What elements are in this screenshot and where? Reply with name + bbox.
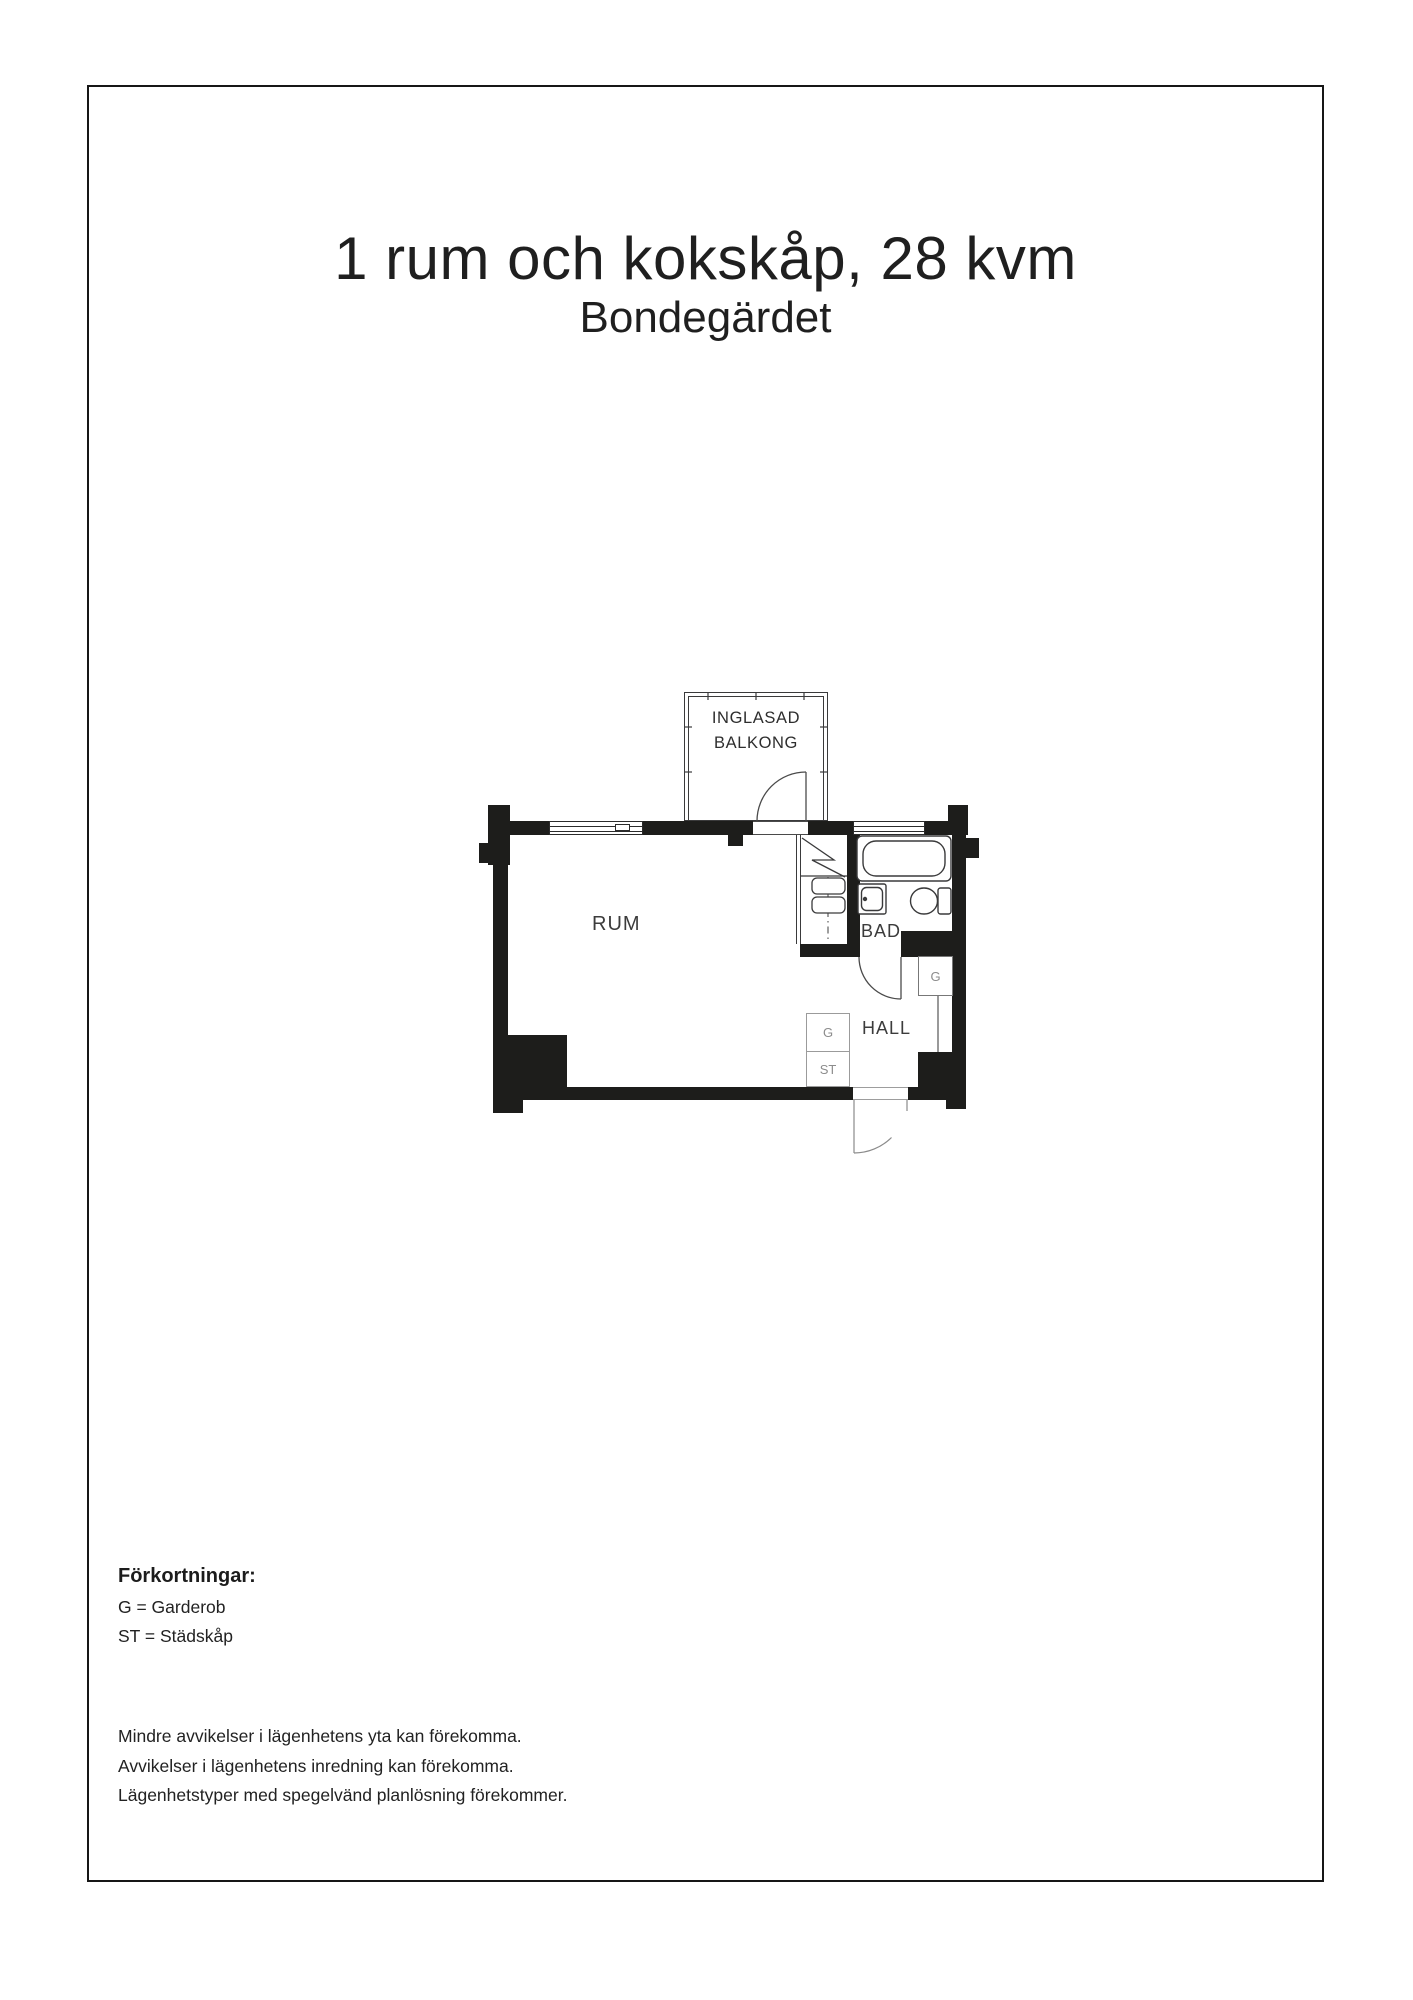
kokskap-partition <box>796 835 801 944</box>
wall-right-pilaster <box>966 838 979 858</box>
balcony-label: INGLASAD BALKONG <box>684 706 828 756</box>
wall-top-b <box>643 821 753 835</box>
closet-stadskap-label: ST <box>807 1052 849 1086</box>
window-glass-lines <box>854 826 924 832</box>
closet-garderob-stadskap-unit: G ST <box>806 1013 850 1087</box>
window-bathroom <box>853 821 925 835</box>
abbreviations-section: Förkortningar: G = Garderob ST = Städskå… <box>118 1563 256 1651</box>
wall-left <box>493 821 508 1100</box>
closet-garderob-label: G <box>807 1014 849 1052</box>
wall-kokskap-bad <box>847 835 860 957</box>
wall-bottom-right-step <box>918 1052 966 1100</box>
page-title: 1 rum och kokskåp, 28 kvm <box>87 228 1324 290</box>
page-border <box>87 85 1324 1882</box>
window-living-room <box>549 821 643 835</box>
wall-top-b-protrusion <box>728 835 743 846</box>
abbreviation-item: ST = Städskåp <box>118 1622 256 1651</box>
room-label-rum: RUM <box>592 913 641 936</box>
wall-bottom-a <box>493 1087 853 1100</box>
wall-bottom-right-corner <box>946 1100 966 1109</box>
page-subtitle: Bondegärdet <box>87 292 1324 344</box>
disclaimer-line: Lägenhetstyper med spegelvänd planlösnin… <box>118 1781 567 1811</box>
disclaimer-line: Avvikelser i lägenhetens inredning kan f… <box>118 1752 567 1782</box>
title-block: 1 rum och kokskåp, 28 kvm Bondegärdet <box>87 228 1324 344</box>
closet-garderob-label: G <box>919 957 952 995</box>
wall-top-c <box>808 821 853 835</box>
window-mullion <box>615 824 630 831</box>
disclaimer-section: Mindre avvikelser i lägenhetens yta kan … <box>118 1722 567 1811</box>
wall-top-a <box>508 821 549 835</box>
disclaimer-line: Mindre avvikelser i lägenhetens yta kan … <box>118 1722 567 1752</box>
wall-bottom-left-step <box>508 1035 567 1087</box>
abbreviation-item: G = Garderob <box>118 1593 256 1622</box>
abbreviations-title: Förkortningar: <box>118 1563 256 1589</box>
wall-kokskap-bottom <box>800 944 847 957</box>
closet-garderob-hall-right: G <box>918 956 953 996</box>
page: 1 rum och kokskåp, 28 kvm Bondegärdet IN… <box>0 0 1413 2000</box>
balcony-door-threshold <box>753 821 808 835</box>
room-label-bad: BAD <box>861 921 901 942</box>
entrance-door-threshold <box>853 1087 908 1100</box>
room-label-hall: HALL <box>862 1018 911 1039</box>
wall-bad-bottom-block <box>901 931 952 957</box>
wall-left-pilaster <box>479 843 493 863</box>
wall-bottom-left-corner <box>493 1087 523 1113</box>
